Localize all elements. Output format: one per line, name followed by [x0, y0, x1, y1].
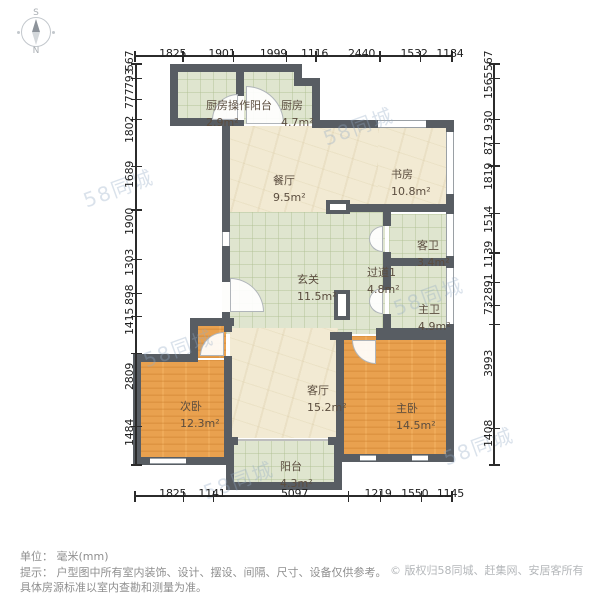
window [222, 232, 230, 246]
room-floor-living [230, 328, 338, 438]
dimension-tick [489, 324, 500, 326]
copyright-notice: © 版权归58同城、赶集网、安居客所有 [390, 562, 584, 578]
window [412, 455, 428, 461]
floor-plan-canvas: S N 58同城58同城58同城58同城58同城58同城厨房操作阳台2.9m²厨… [0, 0, 600, 600]
footer-tip-line-1: 提示： 户型图中所有室内装饰、设计、摆设、间隔、尺寸、设备仅供参考。 [20, 565, 387, 581]
dimension-tick [489, 464, 500, 466]
window [150, 458, 186, 464]
footer-tip-line-2: 具体房源标准以室内查勘和测量为准。 [20, 580, 387, 596]
wall [350, 204, 454, 212]
column [326, 200, 350, 214]
wall [222, 120, 230, 232]
wall [222, 246, 230, 282]
wall [336, 454, 454, 462]
dimension-tick [131, 464, 142, 466]
balcony-threshold [234, 439, 334, 441]
room-floor-guest-bath [389, 214, 448, 260]
window [446, 132, 454, 194]
footer-unit-line: 单位： 毫米(mm) [20, 549, 387, 565]
wall [334, 437, 342, 490]
dimension-tick [348, 491, 350, 502]
wall [236, 64, 244, 96]
window [360, 455, 376, 461]
dimension-tick [131, 353, 142, 355]
footer-notes: 单位： 毫米(mm) 提示： 户型图中所有室内装饰、设计、摆设、间隔、尺寸、设备… [20, 549, 387, 596]
dimension-tick [379, 51, 381, 62]
wall [170, 64, 178, 126]
dimension-tick [134, 491, 136, 502]
wall [383, 212, 391, 226]
window [446, 214, 454, 256]
door-opening [222, 282, 230, 312]
floor-plan-drawing: 58同城58同城58同城58同城58同城58同城厨房操作阳台2.9m²厨房4.7… [0, 0, 600, 600]
